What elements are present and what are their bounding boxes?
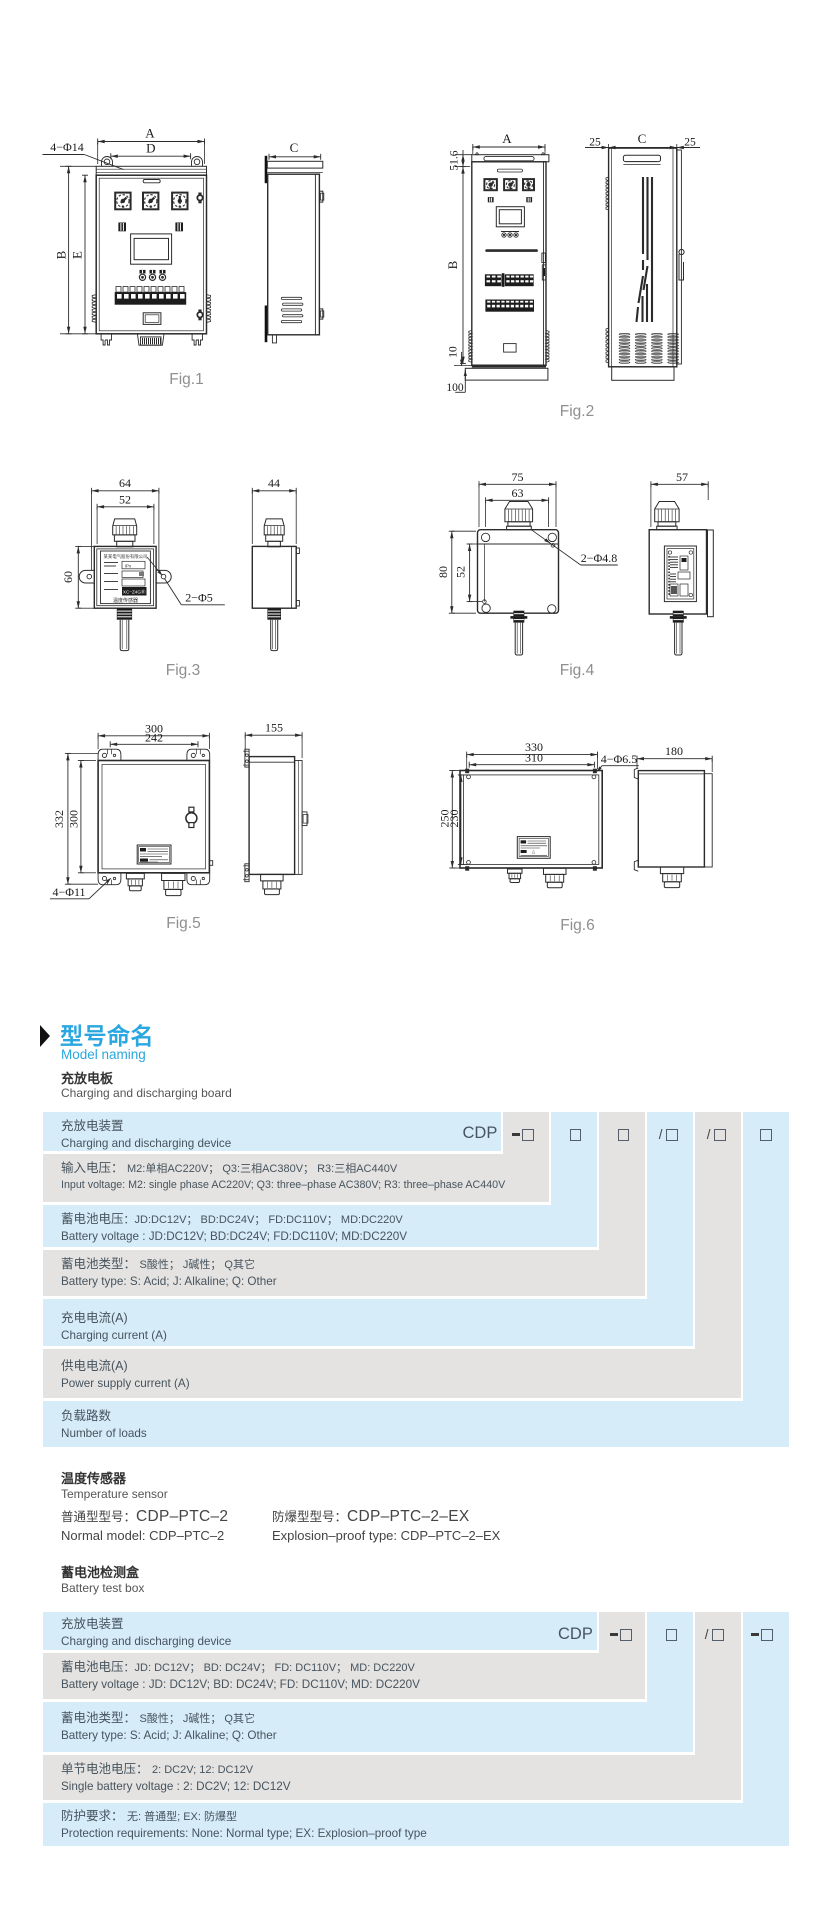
svg-text:D: D	[146, 141, 155, 156]
svg-text:A: A	[145, 126, 155, 141]
svg-text:4−Φ11: 4−Φ11	[52, 885, 85, 899]
svg-text:IPx: IPx	[125, 563, 132, 568]
svg-text:100: 100	[446, 382, 464, 394]
svg-text:300: 300	[66, 810, 80, 828]
svg-text:XC−Z4GⓇ: XC−Z4GⓇ	[123, 589, 146, 596]
svg-text:52: 52	[119, 493, 131, 507]
svg-text:C: C	[638, 131, 647, 146]
svg-text:Fig.6: Fig.6	[560, 917, 594, 934]
svg-text:某某电气股份有限公司: 某某电气股份有限公司	[104, 553, 148, 560]
svg-text:44: 44	[268, 476, 280, 490]
svg-text:75: 75	[512, 470, 524, 484]
svg-text:242: 242	[145, 731, 163, 745]
svg-text:51.6: 51.6	[449, 150, 461, 170]
svg-text:63: 63	[512, 486, 524, 500]
svg-text:Fig.4: Fig.4	[560, 662, 595, 679]
svg-text:Fig.2: Fig.2	[560, 403, 594, 420]
svg-text:64: 64	[119, 476, 131, 490]
svg-text:A: A	[502, 131, 512, 146]
svg-text:52: 52	[453, 566, 467, 578]
svg-text:57: 57	[676, 470, 688, 484]
svg-text:332: 332	[52, 810, 66, 828]
svg-text:B: B	[54, 250, 69, 259]
svg-text:Fig.3: Fig.3	[166, 662, 200, 679]
svg-text:10: 10	[448, 346, 460, 358]
svg-text:4−Φ14: 4−Φ14	[50, 140, 84, 154]
svg-text:25: 25	[589, 137, 601, 149]
svg-text:80: 80	[436, 566, 450, 578]
svg-text:Fig.5: Fig.5	[166, 915, 200, 932]
svg-text:180: 180	[665, 744, 683, 758]
svg-text:155: 155	[265, 721, 283, 735]
svg-text:C: C	[290, 140, 299, 155]
svg-text:2−Φ4.8: 2−Φ4.8	[581, 551, 618, 565]
svg-text:B: B	[445, 260, 460, 269]
svg-text:4−Φ6.5: 4−Φ6.5	[601, 752, 638, 766]
svg-text:△: △	[532, 849, 536, 854]
svg-text:E: E	[70, 251, 85, 259]
svg-text:温度传感器: 温度传感器	[113, 597, 138, 604]
svg-text:60: 60	[61, 571, 75, 583]
svg-text:2−Φ5: 2−Φ5	[185, 591, 213, 605]
svg-text:230: 230	[447, 810, 461, 828]
svg-text:25: 25	[684, 137, 696, 149]
svg-text:Fig.1: Fig.1	[169, 371, 203, 388]
svg-text:310: 310	[525, 751, 543, 765]
